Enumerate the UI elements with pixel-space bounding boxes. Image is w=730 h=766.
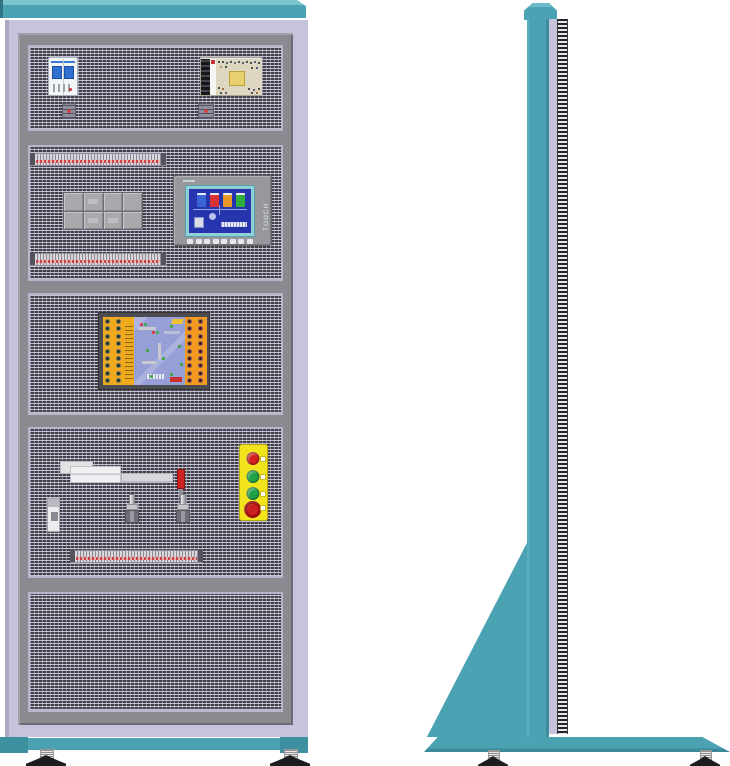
side-view-panel-edge [549, 19, 557, 734]
hmi-function-key [204, 239, 210, 244]
plc-socket [116, 349, 121, 354]
plc-socket [198, 356, 203, 361]
button-contact-tab [260, 505, 266, 511]
hmi-function-keys [187, 239, 253, 244]
plc-socket-row [105, 334, 121, 339]
hmi-function-key [230, 239, 236, 244]
toggle-switch-2 [176, 494, 190, 523]
plc-socket [187, 341, 192, 346]
button-contact-tab [260, 456, 266, 462]
hmi-function-key [196, 239, 202, 244]
side-view-base-plate [424, 737, 730, 752]
red-pushbutton [246, 452, 259, 465]
plc-socket-row [187, 334, 203, 339]
plc-socket [187, 356, 192, 361]
pcb-green-leds [144, 323, 147, 326]
hmi-panel: TOUCH [173, 175, 272, 246]
hmi-screen [189, 189, 251, 233]
plc-socket-row [105, 319, 121, 324]
power-supply [200, 57, 262, 96]
plc-socket [187, 326, 192, 331]
relay-module [123, 193, 142, 211]
plc-socket [198, 349, 203, 354]
push-button-station [239, 444, 268, 521]
plc-socket [198, 363, 203, 368]
plc-socket [116, 356, 121, 361]
plc-socket-row [187, 378, 203, 383]
hmi-screen-pipe [193, 209, 247, 210]
plc-socket [116, 341, 121, 346]
hmi-tank [210, 193, 219, 207]
plc-socket [187, 349, 192, 354]
side-view-top-cap [524, 3, 557, 20]
toggle-body [125, 510, 139, 523]
toggle-switch-1 [125, 494, 139, 523]
pcb-yellow-wedge [171, 319, 184, 324]
button-contact-tab [260, 491, 266, 497]
front-base-left-block [0, 737, 28, 753]
top-cap-highlight [0, 0, 306, 5]
plc-right-terminal-panel [185, 317, 207, 385]
red-lever [177, 469, 185, 489]
psu-transformer [229, 71, 245, 86]
hmi-function-key [247, 239, 253, 244]
plc-socket [105, 378, 110, 383]
plc-socket [198, 326, 203, 331]
pneumatic-cylinder-body [70, 466, 121, 483]
circuit-breaker [48, 57, 78, 96]
hmi-screen-tanks [197, 193, 247, 205]
relay-group [63, 192, 143, 230]
breaker-indicator-dot [69, 88, 72, 91]
relay-module [64, 212, 83, 230]
relay-module [104, 193, 123, 211]
psu-circuit-board [216, 59, 262, 95]
plc-socket-row [105, 349, 121, 354]
hmi-function-key [238, 239, 244, 244]
plc-socket [105, 349, 110, 354]
plc-socket [116, 363, 121, 368]
hmi-tank [223, 193, 232, 207]
hmi-function-key [213, 239, 219, 244]
terminal-block-right [198, 103, 214, 119]
terminal-strip-upper [30, 153, 166, 166]
psu-terminals [201, 59, 210, 95]
pneumatic-cylinder-rod [121, 473, 173, 482]
hmi-touch-label: TOUCH [262, 191, 270, 231]
plc-socket [187, 378, 192, 383]
hmi-screen-frame [185, 185, 255, 237]
plc-socket [198, 341, 203, 346]
hmi-screen-mixer [209, 213, 216, 220]
pcb-component-bar [138, 327, 156, 330]
plc-socket [187, 363, 192, 368]
green-pushbutton-1 [246, 470, 259, 483]
plc-socket [105, 334, 110, 339]
plc-socket [116, 319, 121, 324]
side-view-perforation-edge [557, 19, 568, 734]
plc-socket [187, 334, 192, 339]
plc-socket-row [187, 319, 203, 324]
plc-socket [105, 341, 110, 346]
psu-capacitors [218, 61, 220, 63]
plc-left-labels [125, 323, 133, 379]
plc-socket [187, 371, 192, 376]
pcb-component-bar [158, 343, 161, 359]
plc-socket-row [187, 363, 203, 368]
plc-circuit-board [134, 317, 185, 385]
relay-module [123, 212, 142, 230]
button-contact-tab [260, 474, 266, 480]
hmi-brand-mark [183, 180, 195, 182]
hmi-screen-conveyor [221, 222, 247, 227]
emergency-stop-button [244, 501, 261, 518]
plc-socket-row [187, 356, 203, 361]
side-view-column [527, 19, 549, 738]
relay-module [84, 212, 103, 230]
toggle-body [176, 510, 190, 523]
hmi-tank [236, 193, 245, 207]
plc-socket [187, 319, 192, 324]
plc-socket-row [105, 371, 121, 376]
plc-socket-row [105, 326, 121, 331]
plc-socket [198, 334, 203, 339]
plc-right-sockets [187, 319, 203, 383]
plc-socket [105, 319, 110, 324]
green-pushbutton-2 [246, 487, 259, 500]
side-left-foot [478, 750, 508, 766]
plc-socket [105, 363, 110, 368]
front-left-foot [26, 749, 66, 766]
hmi-screen-machine [194, 217, 204, 228]
plc-socket [198, 371, 203, 376]
hmi-function-key [221, 239, 227, 244]
perforated-panel-5 [28, 592, 283, 712]
plc-socket-row [187, 371, 203, 376]
top-cap-left-edge [0, 0, 3, 18]
hmi-tank [197, 193, 206, 207]
side-view-gusset [427, 543, 527, 737]
plc-socket-row [105, 356, 121, 361]
hmi-function-key [187, 239, 193, 244]
plc-socket [116, 378, 121, 383]
terminal-strip-lower [30, 253, 166, 266]
plc-socket-row [105, 378, 121, 383]
plc-socket [198, 319, 203, 324]
plc-socket-row [187, 341, 203, 346]
plc-left-sockets [105, 319, 121, 383]
pcb-red-leds [140, 323, 143, 326]
plc-socket [116, 334, 121, 339]
hmi-screen-pipe-vertical [219, 205, 220, 215]
plc-socket [105, 371, 110, 376]
plc-socket [105, 326, 110, 331]
relay-module [84, 193, 103, 211]
cabinet-left-edge [5, 20, 9, 737]
relay-module [64, 193, 83, 211]
plc-socket [116, 326, 121, 331]
side-right-foot [690, 750, 720, 766]
equipment-illustration: TOUCH [0, 0, 730, 766]
terminal-block-left [62, 103, 76, 119]
plc-socket-row [187, 349, 203, 354]
plc-socket [105, 356, 110, 361]
plc-trainer-board [98, 312, 210, 390]
plc-socket-row [187, 326, 203, 331]
plc-left-terminal-panel [103, 317, 134, 385]
cabinet-top-cap [0, 0, 306, 18]
plc-socket-row [105, 341, 121, 346]
mini-breaker [47, 498, 60, 532]
pcb-red-label [170, 377, 182, 382]
breaker-toggle [52, 66, 74, 79]
relay-module [104, 212, 123, 230]
terminal-strip-bottom [70, 550, 203, 563]
plc-socket [198, 378, 203, 383]
pcb-component-bar [164, 331, 180, 334]
plc-socket-row [105, 363, 121, 368]
plc-socket [116, 371, 121, 376]
front-right-foot [270, 749, 310, 766]
pcb-dip-switch [146, 374, 164, 379]
pcb-component-bar [142, 361, 156, 364]
